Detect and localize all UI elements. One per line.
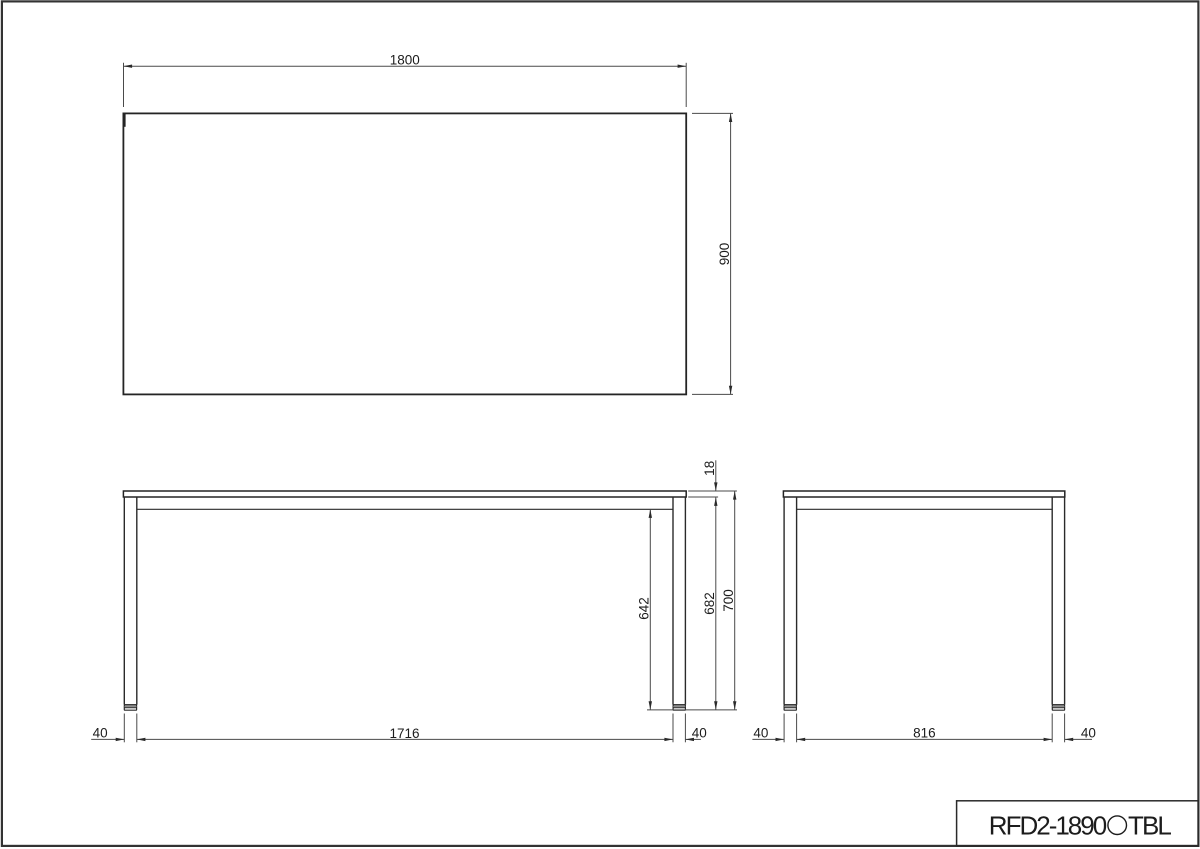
- svg-text:900: 900: [717, 243, 732, 266]
- svg-text:1716: 1716: [389, 726, 419, 741]
- svg-text:816: 816: [913, 725, 936, 740]
- svg-text:40: 40: [1081, 725, 1096, 740]
- svg-text:18: 18: [702, 461, 717, 476]
- svg-text:40: 40: [93, 725, 108, 740]
- svg-text:642: 642: [637, 597, 652, 620]
- svg-text:TBL: TBL: [1128, 811, 1171, 841]
- svg-text:40: 40: [753, 725, 768, 740]
- svg-text:682: 682: [702, 592, 717, 615]
- svg-text:1800: 1800: [390, 52, 420, 67]
- svg-text:40: 40: [692, 725, 707, 740]
- svg-text:RFD2-1890: RFD2-1890: [989, 811, 1107, 841]
- svg-text:700: 700: [721, 589, 736, 612]
